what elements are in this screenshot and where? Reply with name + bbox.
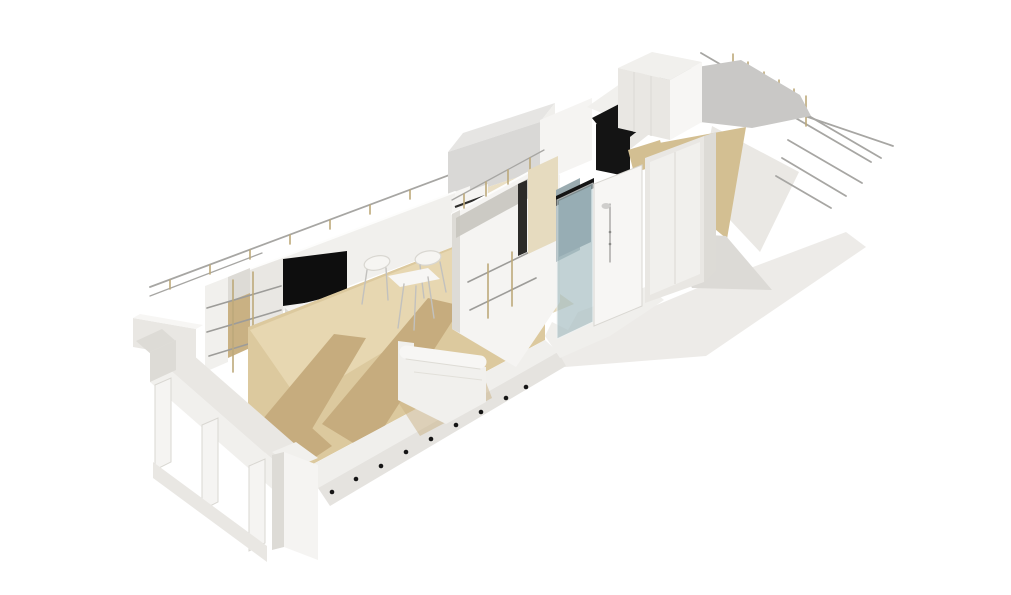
dark-door-panel	[596, 124, 630, 177]
downlight-dot	[330, 490, 335, 495]
entry-window-post-1	[155, 378, 171, 470]
shower-knob	[609, 231, 612, 234]
entry-window-post-2	[202, 418, 218, 510]
downlight-dot	[479, 410, 484, 415]
downlight-dot	[429, 437, 434, 442]
downlight-dot	[524, 385, 529, 390]
apartment-3d-cutaway-rendering: Axonometric 3D cutaway rendering of a na…	[0, 0, 1011, 595]
wardrobe-side-sliver	[704, 132, 716, 282]
downlight-dot	[454, 423, 459, 428]
shower-head	[602, 203, 611, 209]
corner-column-side	[272, 452, 284, 550]
downlight-dot	[354, 477, 359, 482]
shower-glass-panel	[557, 183, 593, 339]
bathroom-tile-wall	[528, 156, 558, 254]
bathroom-mirror	[518, 180, 527, 256]
downlight-dot	[504, 396, 509, 401]
corner-column-front	[284, 452, 318, 560]
downlight-dot	[404, 450, 409, 455]
shelving-side-panel	[205, 277, 228, 372]
cabinet-front	[618, 68, 670, 140]
render-canvas: Axonometric 3D cutaway rendering of a na…	[0, 0, 1011, 595]
tall-cabinet-group	[618, 52, 702, 140]
downlight-dot	[379, 464, 384, 469]
shower-back-panel	[594, 165, 642, 326]
shower-knob	[609, 243, 612, 246]
